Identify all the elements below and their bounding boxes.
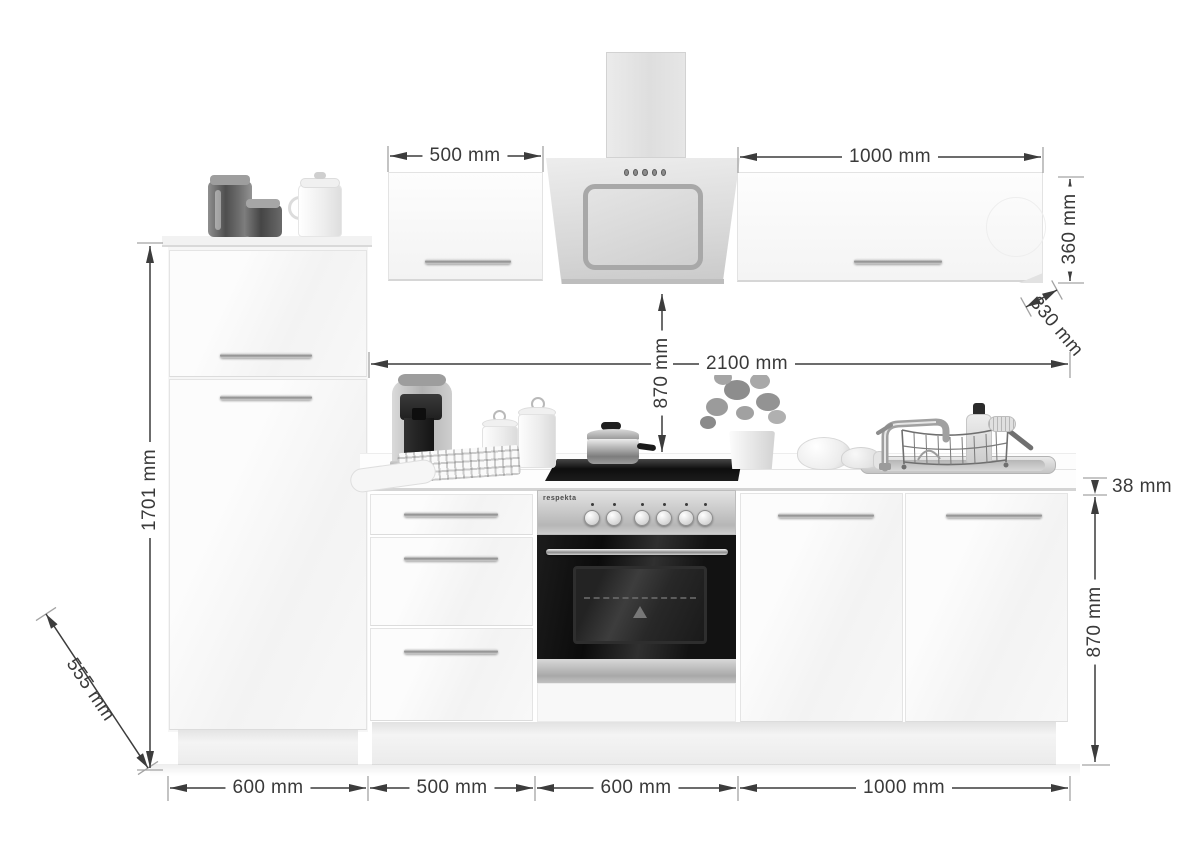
kitchen-dimension-diagram: respekta — [0, 0, 1200, 849]
dim-upper-left-width: 500 mm — [422, 145, 507, 167]
dim-upper-right-width: 1000 mm — [842, 146, 938, 168]
dim-base-height: 870 mm — [1084, 579, 1106, 664]
dim-base-width-3: 600 mm — [593, 777, 678, 799]
dimension-lines — [0, 0, 1200, 849]
dim-base-width-1: 600 mm — [225, 777, 310, 799]
dim-upper-cabinet-height: 360 mm — [1059, 186, 1081, 271]
dim-base-width-2: 500 mm — [409, 777, 494, 799]
dim-worktop-thickness: 38 mm — [1112, 476, 1172, 498]
dim-base-width-4: 1000 mm — [856, 777, 952, 799]
dim-tall-cabinet-height: 1701 mm — [139, 442, 161, 538]
dim-wall-run-width: 2100 mm — [699, 353, 795, 375]
dim-hood-clearance: 870 mm — [651, 330, 673, 415]
